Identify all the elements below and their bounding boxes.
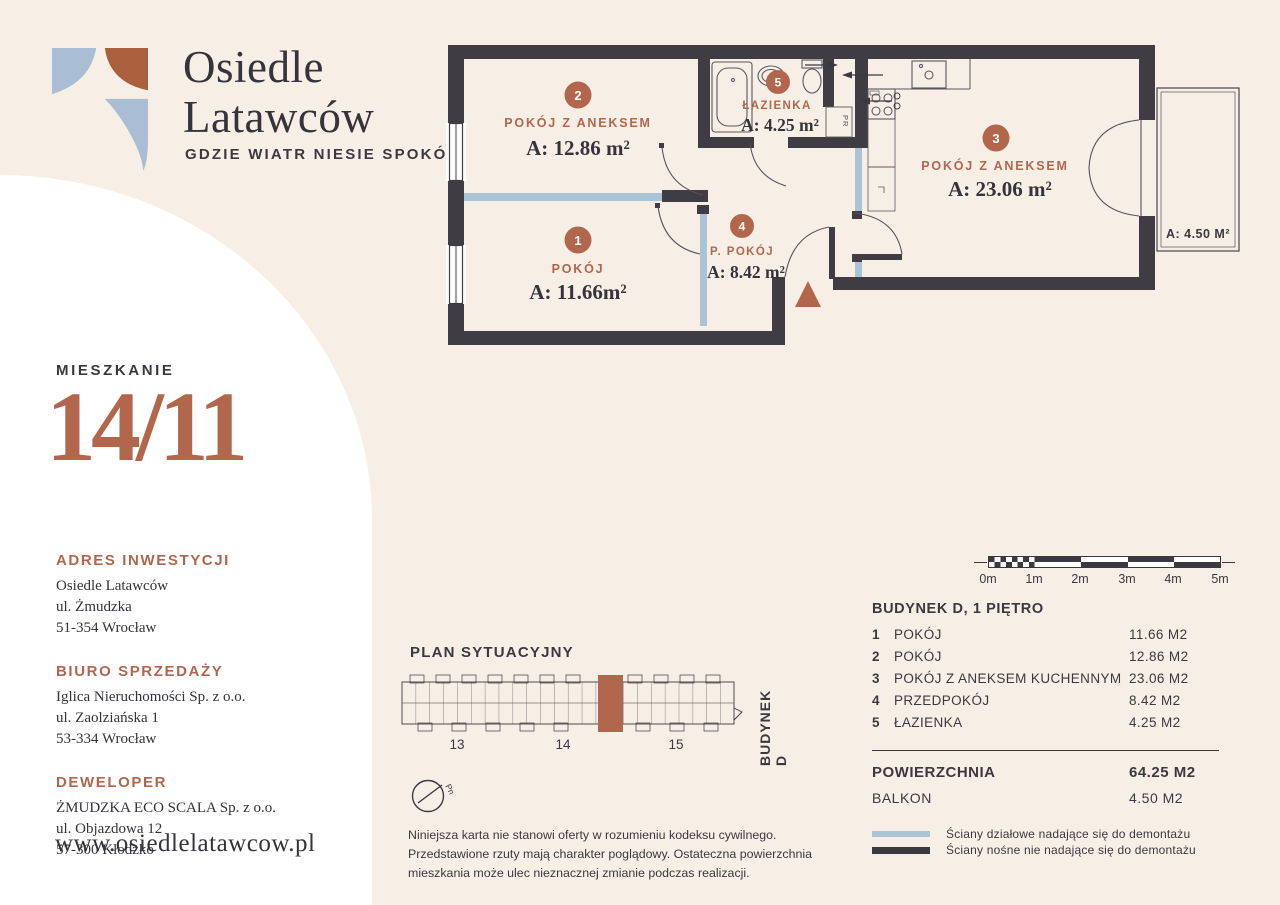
info-line: ŻMUDZKA ECO SCALA Sp. z o.o.: [56, 798, 356, 819]
svg-text:A: 11.66m²: A: 11.66m²: [529, 280, 626, 304]
info-line: 51-354 Wrocław: [56, 618, 356, 639]
total-value: 64.25 M2: [1129, 764, 1219, 781]
disclaimer-line: Przedstawione rzuty mają charakter poglą…: [408, 845, 812, 864]
load-bearing-wall-swatch: [872, 847, 930, 854]
room-summary-table: BUDYNEK D, 1 PIĘTRO 1 POKÓJ 11.66 M2 2 P…: [872, 601, 1219, 858]
svg-text:P. POKÓJ: P. POKÓJ: [710, 245, 774, 258]
total-label: POWIERZCHNIA: [872, 764, 1129, 781]
scale-tick: 5m: [1205, 572, 1235, 586]
info-section-sales-office: BIURO SPRZEDAŻY Iglica Nieruchomości Sp.…: [56, 663, 356, 750]
brand-name: Osiedle Latawców: [183, 42, 374, 142]
row-area: 12.86 M2: [1129, 649, 1219, 664]
siteplan-title: PLAN SYTUACYJNY: [410, 644, 574, 661]
info-section-address: ADRES INWESTYCJI Osiedle Latawców ul. Żm…: [56, 552, 356, 639]
svg-text:ŁAZIENKA: ŁAZIENKA: [742, 100, 811, 112]
brand-name-line2: Latawców: [183, 92, 374, 142]
svg-text:A: 12.86 m²: A: 12.86 m²: [526, 136, 630, 160]
table-row: 4 PRZEDPOKÓJ 8.42 M2: [872, 693, 1219, 715]
scale-bar-labels: 0m 1m 2m 3m 4m 5m: [988, 572, 1221, 588]
scale-tick: 4m: [1158, 572, 1188, 586]
row-name: POKÓJ Z ANEKSEM KUCHENNYM: [894, 671, 1129, 686]
info-line: Iglica Nieruchomości Sp. z o.o.: [56, 687, 356, 708]
svg-text:A: 23.06 m²: A: 23.06 m²: [948, 177, 1052, 201]
building-label: BUDYNEK D: [757, 674, 789, 766]
row-number: 3: [872, 671, 894, 686]
closet-label: PR: [841, 115, 850, 127]
balcony-area-label: A: 4.50 M²: [1166, 227, 1230, 241]
property-card-page: Osiedle Latawców GDZIE WIATR NIESIE SPOK…: [0, 0, 1280, 905]
row-number: 5: [872, 715, 894, 730]
svg-text:15: 15: [668, 737, 683, 752]
svg-text:13: 13: [449, 737, 464, 752]
row-name: ŁAZIENKA: [894, 715, 1129, 730]
svg-text:4: 4: [739, 220, 746, 234]
svg-text:POKÓJ Z ANEKSEM: POKÓJ Z ANEKSEM: [921, 158, 1068, 173]
svg-text:2: 2: [574, 88, 581, 103]
svg-text:POKÓJ Z ANEKSEM: POKÓJ Z ANEKSEM: [504, 115, 651, 130]
svg-text:3: 3: [992, 131, 999, 146]
disclaimer-line: mieszkania może ulec nieznacznej zmianie…: [408, 864, 812, 883]
row-area: 11.66 M2: [1129, 627, 1219, 642]
total-area-row: POWIERZCHNIA 64.25 M2: [872, 764, 1219, 781]
scale-bar: 0m 1m 2m 3m 4m 5m: [988, 556, 1221, 588]
disclaimer-line: Niniejsza karta nie stanowi oferty w roz…: [408, 826, 812, 845]
table-row: 3 POKÓJ Z ANEKSEM KUCHENNYM 23.06 M2: [872, 671, 1219, 693]
scale-tick: 2m: [1065, 572, 1095, 586]
floor-plan: PR 2 POKÓJ Z ANEKSEM A: 12.86 m² 1 POKÓJ…: [440, 35, 1255, 355]
scale-tick: 0m: [973, 572, 1003, 586]
legend-row: Ściany nośne nie nadające się do demonta…: [872, 842, 1219, 858]
balcony-row: BALKON 4.50 M2: [872, 790, 1219, 806]
svg-text:1: 1: [574, 233, 581, 248]
info-heading: ADRES INWESTYCJI: [56, 552, 356, 569]
scale-tick: 3m: [1112, 572, 1142, 586]
disclaimer-text: Niniejsza karta nie stanowi oferty w roz…: [408, 826, 812, 883]
scale-bar-graphic: [988, 556, 1221, 568]
row-area: 4.25 M2: [1129, 715, 1219, 730]
divider: [872, 750, 1219, 751]
kite-logo-icon: [52, 46, 148, 172]
svg-text:5: 5: [775, 76, 782, 90]
kitchen-sink-icon: [912, 61, 946, 88]
svg-text:POKÓJ: POKÓJ: [552, 261, 605, 276]
svg-text:14: 14: [555, 737, 571, 752]
summary-header: BUDYNEK D, 1 PIĘTRO: [872, 601, 1219, 617]
website-link[interactable]: www.osiedlelatawcow.pl: [55, 830, 315, 858]
highlighted-unit: [598, 675, 623, 732]
compass-icon: Pn: [408, 774, 460, 820]
balcony-value: 4.50 M2: [1129, 790, 1219, 806]
legend-label: Ściany działowe nadające się do demontaż…: [946, 827, 1190, 841]
info-line: ul. Żmudzka: [56, 597, 356, 618]
row-area: 23.06 M2: [1129, 671, 1219, 686]
row-area: 8.42 M2: [1129, 693, 1219, 708]
window-icon: [446, 123, 466, 181]
row-number: 2: [872, 649, 894, 664]
row-number: 4: [872, 693, 894, 708]
table-row: 2 POKÓJ 12.86 M2: [872, 649, 1219, 671]
demountable-wall-swatch: [872, 831, 930, 837]
table-row: 5 ŁAZIENKA 4.25 M2: [872, 715, 1219, 737]
info-heading: BIURO SPRZEDAŻY: [56, 663, 356, 680]
info-heading: DEWELOPER: [56, 774, 356, 791]
apartment-number: 14/11: [46, 372, 243, 482]
row-name: PRZEDPOKÓJ: [894, 693, 1129, 708]
info-line: Osiedle Latawców: [56, 576, 356, 597]
stove-icon: [868, 89, 895, 119]
brand-name-line1: Osiedle: [183, 42, 374, 92]
svg-text:A: 8.42 m²: A: 8.42 m²: [707, 262, 785, 282]
balcony-door-icon: [1089, 120, 1157, 216]
entrance-arrow-icon: [795, 281, 821, 307]
row-number: 1: [872, 627, 894, 642]
svg-text:A: 4.25 m²: A: 4.25 m²: [741, 115, 819, 135]
legend-label: Ściany nośne nie nadające się do demonta…: [946, 843, 1196, 857]
info-line: ul. Zaolziańska 1: [56, 708, 356, 729]
balcony-label: BALKON: [872, 790, 1129, 806]
siteplan-drawing: 13 14 15: [396, 668, 748, 756]
closet-pr: PR: [826, 107, 852, 137]
row-name: POKÓJ: [894, 649, 1129, 664]
window-icon: [446, 245, 466, 304]
wall-legend: Ściany działowe nadające się do demontaż…: [872, 826, 1219, 858]
table-row: 1 POKÓJ 11.66 M2: [872, 627, 1219, 649]
brand-tagline: GDZIE WIATR NIESIE SPOKÓJ: [185, 146, 458, 163]
legend-row: Ściany działowe nadające się do demontaż…: [872, 826, 1219, 842]
info-line: 53-334 Wrocław: [56, 729, 356, 750]
stairwell-numbers: 13 14 15: [449, 737, 683, 752]
building-outline: [402, 682, 742, 724]
compass-north-label: Pn: [443, 782, 457, 796]
scale-tick: 1m: [1019, 572, 1049, 586]
row-name: POKÓJ: [894, 627, 1129, 642]
